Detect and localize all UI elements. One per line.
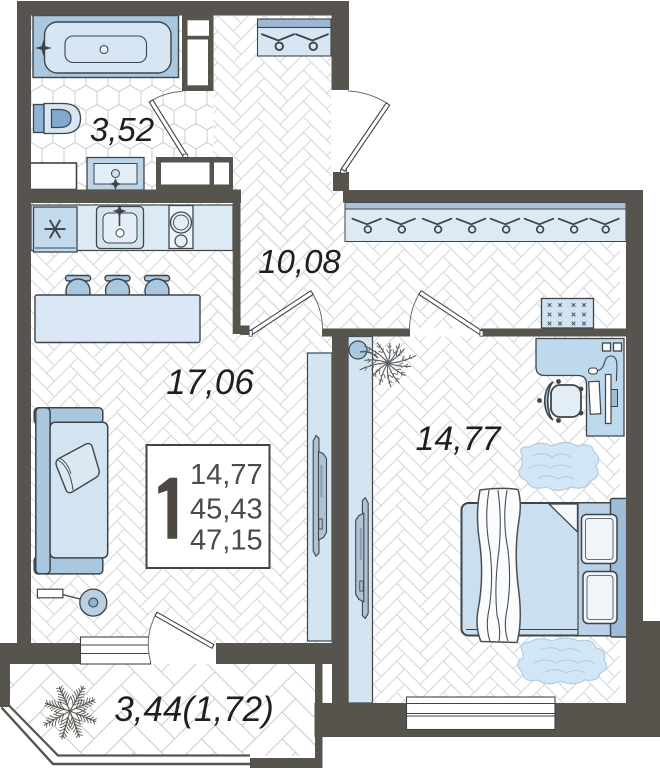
svg-text:17,06: 17,06 — [166, 363, 254, 402]
svg-text:45,43: 45,43 — [190, 494, 263, 526]
svg-text:10,08: 10,08 — [258, 243, 341, 280]
svg-text:14,77: 14,77 — [190, 459, 263, 491]
svg-text:3,44(1,72): 3,44(1,72) — [114, 690, 274, 729]
svg-text:14,77: 14,77 — [415, 420, 501, 458]
svg-text:47,15: 47,15 — [190, 525, 263, 557]
svg-text:3,52: 3,52 — [90, 111, 154, 148]
